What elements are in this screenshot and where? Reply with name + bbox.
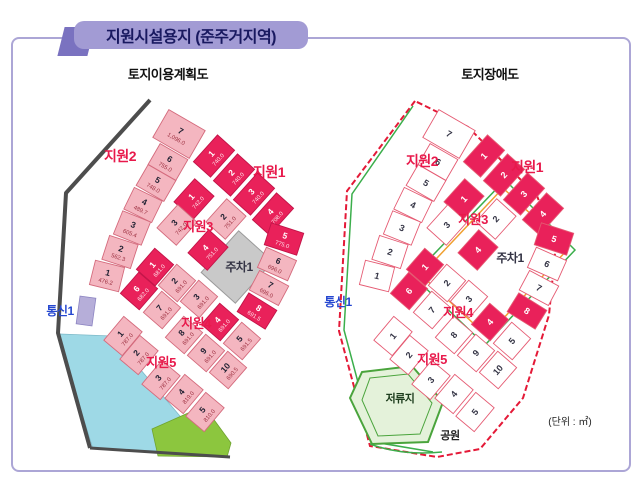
obstacle-label-pond: 저류지: [386, 391, 415, 405]
plan-label-jiwon2: 지원2: [104, 148, 137, 164]
land-use-maps-canvas: 1476.22562.33605.44489.75748.06755.071,0…: [0, 0, 640, 480]
plan-label-parking: 주차1: [225, 259, 253, 274]
obstacle-label-park: 공원: [440, 428, 460, 442]
plan-label-comm: 통신1: [46, 303, 74, 318]
obstacle-label-jiwon2: 지원2: [406, 153, 439, 169]
obstacle-label-jiwon3: 지원3: [458, 212, 488, 227]
obstacle-label-jiwon5: 지원5: [417, 352, 447, 367]
plan-label-jiwon1: 지원1: [253, 164, 286, 180]
plan-label-jiwon4: 지원4: [181, 316, 212, 331]
obstacle-label-parking: 주차1: [496, 250, 524, 265]
unit-note: (단위 : ㎡): [518, 413, 622, 428]
plan-label-jiwon5: 지원5: [146, 355, 176, 370]
plan-comm-parcel: [76, 296, 96, 326]
obstacle-label-comm: 통신1: [324, 294, 352, 309]
slide-page: 지원시설용지 (준주거지역) 토지이용계획도 토지장애도 1476.22562.…: [0, 0, 640, 480]
obstacle-label-jiwon4: 지원4: [443, 305, 474, 320]
plan-label-jiwon3: 지원3: [183, 219, 213, 234]
obstacle-label-jiwon1: 지원1: [511, 159, 544, 175]
